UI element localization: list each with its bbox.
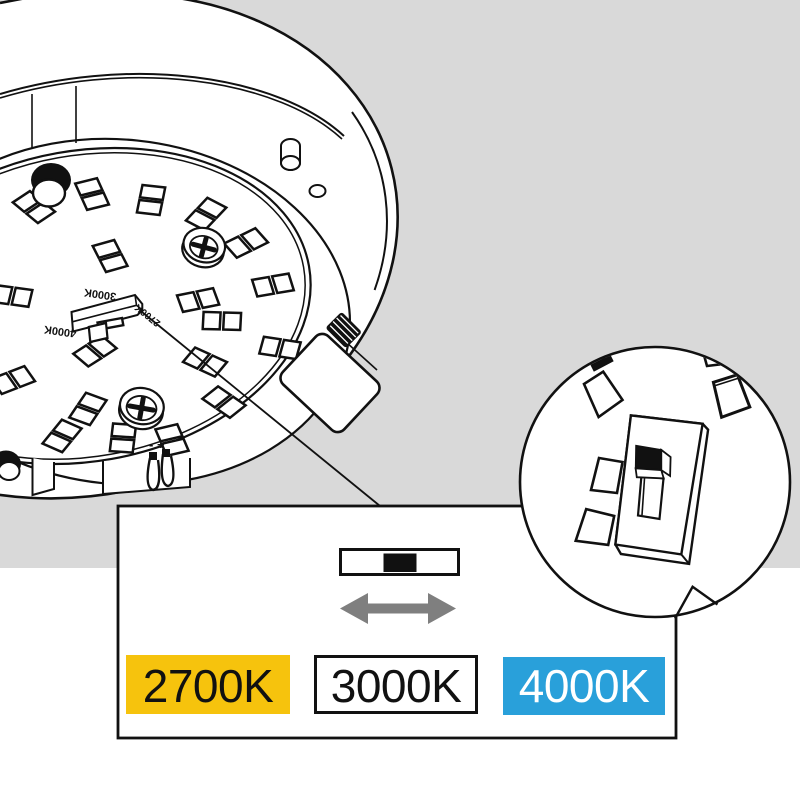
svg-text:4000K: 4000K <box>519 660 650 712</box>
svg-text:3000K: 3000K <box>331 660 462 712</box>
svg-text:2700K: 2700K <box>143 660 274 712</box>
